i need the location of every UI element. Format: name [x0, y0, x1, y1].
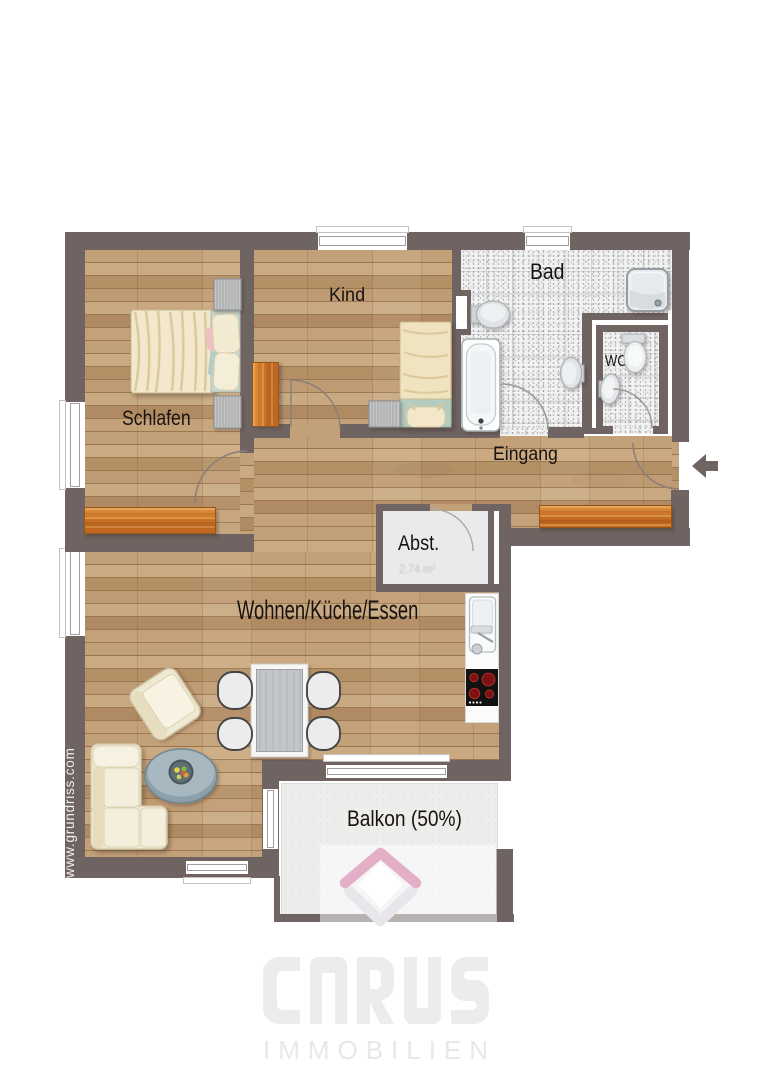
svg-text:IMMOBILIEN: IMMOBILIEN [263, 1035, 496, 1065]
